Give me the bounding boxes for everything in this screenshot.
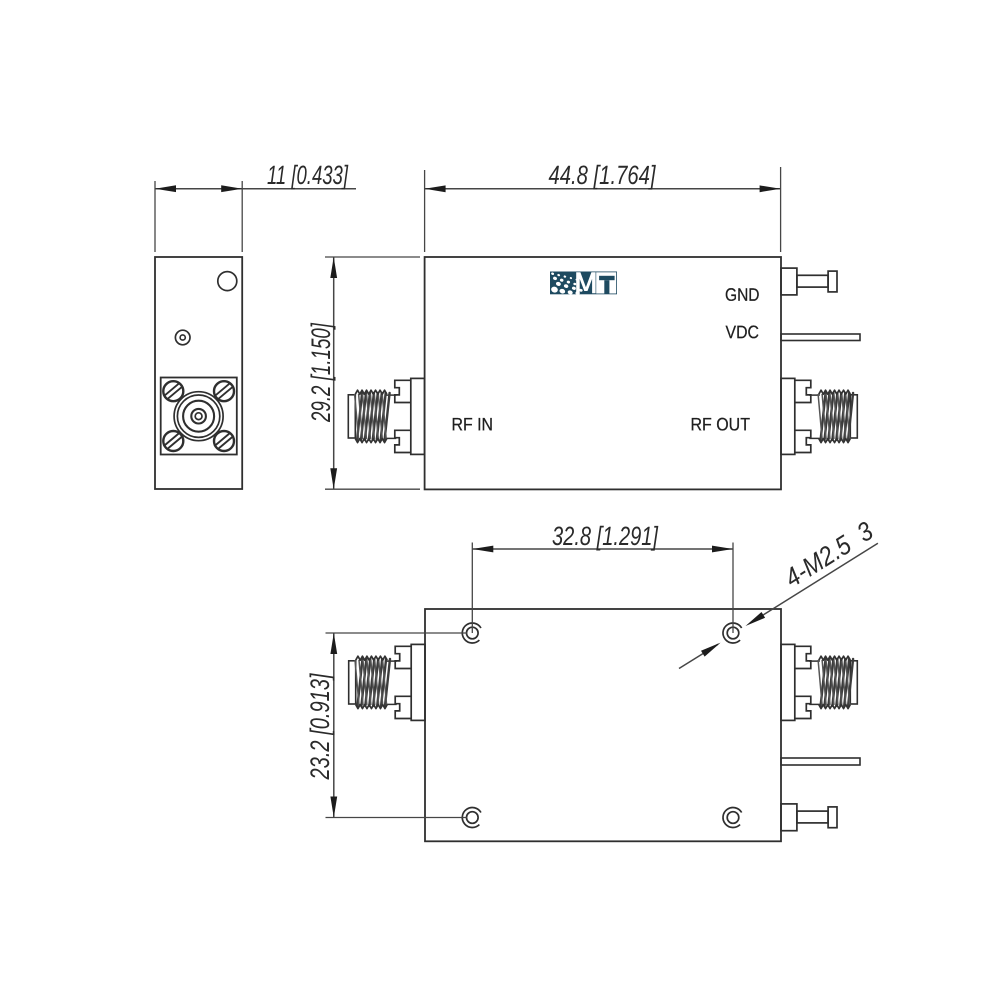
svg-text:RF IN: RF IN — [451, 414, 493, 434]
svg-text:23.2 [0.913]: 23.2 [0.913] — [305, 673, 335, 780]
svg-text:11 [0.433]: 11 [0.433] — [267, 160, 348, 190]
svg-text:29.2 [1.150]: 29.2 [1.150] — [306, 323, 336, 423]
svg-text:GND: GND — [725, 285, 760, 305]
svg-text:32.8 [1.291]: 32.8 [1.291] — [552, 521, 658, 551]
svg-text:44.8 [1.764]: 44.8 [1.764] — [548, 160, 656, 190]
svg-text:VDC: VDC — [725, 322, 759, 342]
svg-text:RF OUT: RF OUT — [690, 414, 750, 434]
